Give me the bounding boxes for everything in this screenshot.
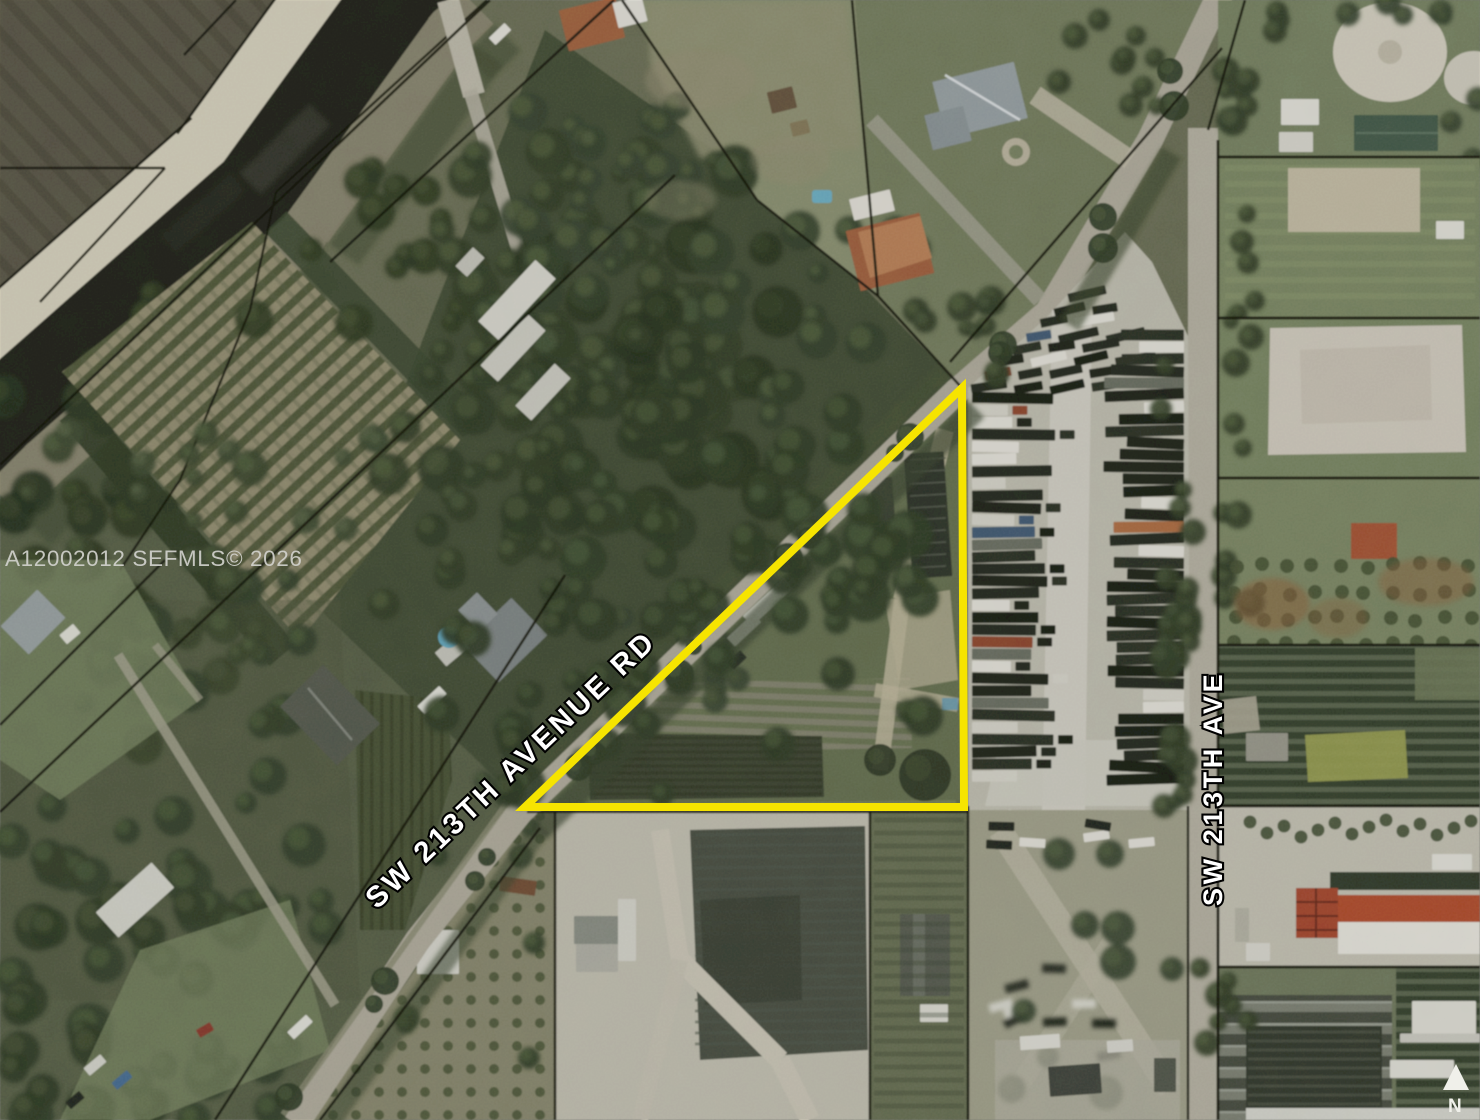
svg-text:SW 213TH AVE: SW 213TH AVE — [1198, 671, 1228, 906]
svg-text:A12002012 SEFMLS© 2026: A12002012 SEFMLS© 2026 — [5, 546, 302, 571]
svg-text:N: N — [1448, 1096, 1462, 1117]
